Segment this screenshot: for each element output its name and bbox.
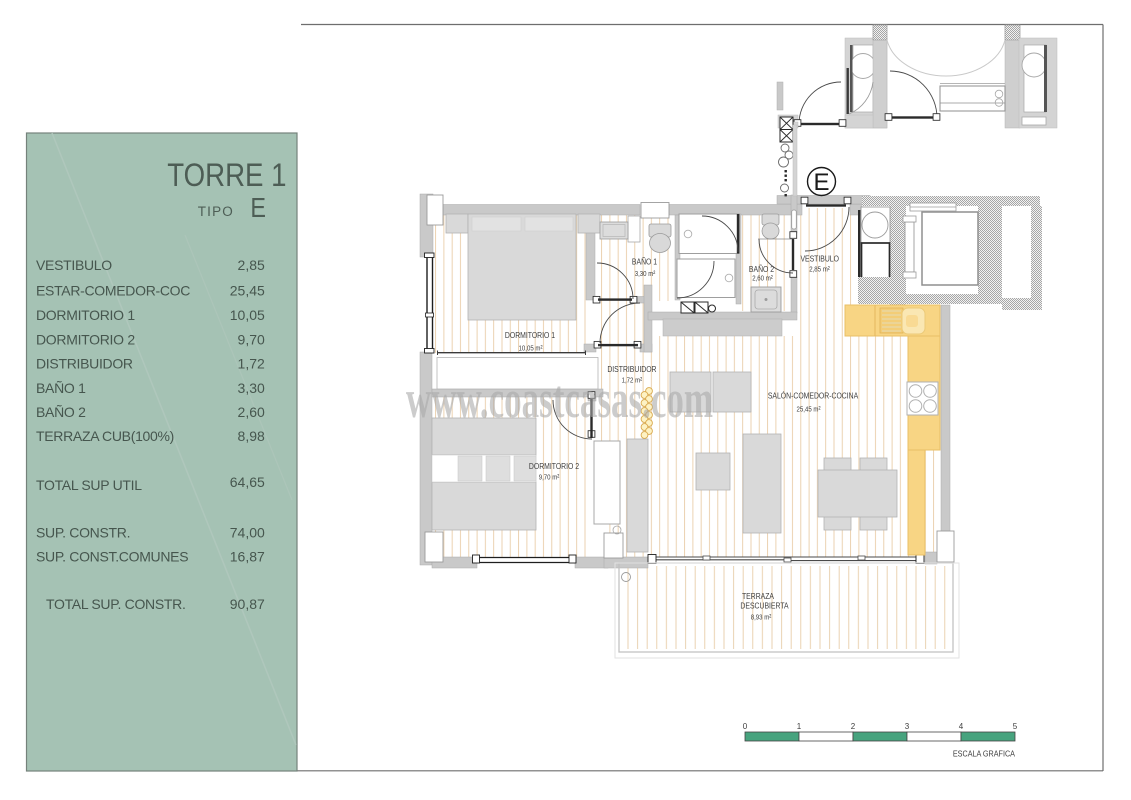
svg-text:ESCALA GRAFICA: ESCALA GRAFICA [953, 749, 1016, 759]
svg-text:TOTAL SUP. CONSTR.: TOTAL SUP. CONSTR. [46, 596, 186, 612]
svg-text:1: 1 [797, 722, 802, 731]
svg-text:SUP. CONST.COMUNES: SUP. CONST.COMUNES [36, 549, 188, 565]
svg-text:0: 0 [743, 722, 748, 731]
svg-text:16,87: 16,87 [230, 549, 265, 565]
svg-text:90,87: 90,87 [230, 596, 265, 612]
svg-text:VESTIBULO: VESTIBULO [800, 254, 839, 264]
svg-text:3,30: 3,30 [238, 380, 265, 396]
svg-text:9,70: 9,70 [238, 332, 265, 348]
svg-text:DISTRIBUIDOR: DISTRIBUIDOR [36, 356, 133, 372]
svg-text:SALÓN-COMEDOR-COCINA: SALÓN-COMEDOR-COCINA [768, 391, 859, 401]
svg-text:DORMITORIO 1: DORMITORIO 1 [36, 307, 135, 323]
svg-text:TERRAZA CUB(100%): TERRAZA CUB(100%) [36, 428, 174, 444]
svg-text:BAÑO 2: BAÑO 2 [36, 404, 86, 420]
svg-text:DISTRIBUIDOR: DISTRIBUIDOR [607, 364, 657, 374]
svg-text:3: 3 [905, 722, 910, 731]
svg-text:DESCUBIERTA: DESCUBIERTA [740, 601, 789, 611]
svg-text:E: E [813, 169, 829, 196]
svg-text:5: 5 [1013, 722, 1018, 731]
svg-text:74,00: 74,00 [230, 525, 265, 541]
svg-text:TERRAZA: TERRAZA [742, 591, 775, 601]
svg-text:10,05: 10,05 [230, 307, 265, 323]
svg-text:DORMITORIO 1: DORMITORIO 1 [505, 330, 555, 340]
svg-text:VESTIBULO: VESTIBULO [36, 257, 112, 273]
svg-text:DORMITORIO 2: DORMITORIO 2 [36, 332, 135, 348]
svg-text:1,72: 1,72 [238, 356, 265, 372]
svg-text:DORMITORIO 2: DORMITORIO 2 [529, 461, 579, 471]
svg-text:TORRE 1: TORRE 1 [167, 158, 286, 194]
svg-text:64,65: 64,65 [230, 474, 265, 490]
svg-text:BAÑO 2: BAÑO 2 [749, 264, 774, 274]
svg-text:TIPO: TIPO [198, 204, 234, 219]
svg-text:2,85 m²: 2,85 m² [809, 266, 830, 274]
svg-text:3,30 m²: 3,30 m² [635, 270, 656, 278]
svg-text:10,05 m²: 10,05 m² [519, 345, 544, 353]
svg-text:2: 2 [851, 722, 856, 731]
svg-text:ESTAR-COMEDOR-COC: ESTAR-COMEDOR-COC [36, 283, 190, 299]
svg-text:www.coastcasas.com: www.coastcasas.com [406, 370, 713, 429]
svg-text:9,70 m²: 9,70 m² [539, 474, 560, 482]
svg-text:8,93 m²: 8,93 m² [751, 614, 772, 622]
svg-text:25,45 m²: 25,45 m² [797, 406, 822, 414]
svg-text:25,45: 25,45 [230, 283, 265, 299]
svg-text:4: 4 [959, 722, 964, 731]
svg-text:2,60: 2,60 [238, 404, 265, 420]
svg-text:8,98: 8,98 [238, 428, 265, 444]
svg-text:BAÑO 1: BAÑO 1 [36, 380, 86, 396]
svg-text:SUP. CONSTR.: SUP. CONSTR. [36, 525, 130, 541]
svg-text:BAÑO 1: BAÑO 1 [632, 257, 657, 267]
svg-text:TOTAL SUP UTIL: TOTAL SUP UTIL [36, 477, 142, 493]
svg-text:2,60 m²: 2,60 m² [752, 275, 773, 283]
svg-text:1,72 m²: 1,72 m² [622, 377, 643, 385]
svg-text:2,85: 2,85 [238, 257, 265, 273]
svg-text:E: E [250, 193, 266, 223]
